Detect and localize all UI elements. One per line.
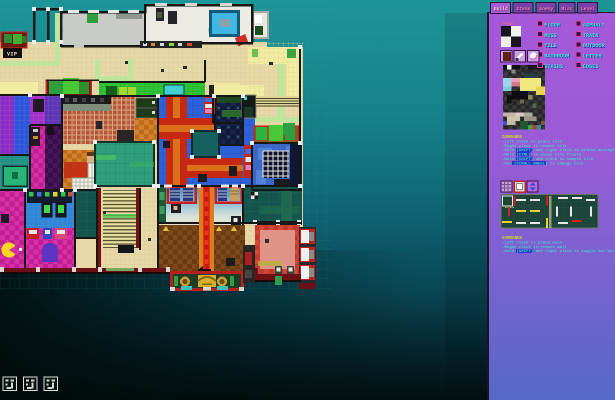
svg-text:-Left click to place tile: -Left click to place tile <box>502 139 563 144</box>
svg-text:COMMANDS: COMMANDS <box>502 136 523 140</box>
svg-text:-Left click to place wall: -Left click to place wall <box>502 240 563 245</box>
svg-text:ASPHALT: ASPHALT <box>583 22 605 28</box>
svg-text:TRAIN: TRAIN <box>583 33 599 39</box>
svg-text:-Use [SCROLL WHEEL] to change: -Use [SCROLL WHEEL] to change tile <box>502 161 584 166</box>
svg-text:Level: Level <box>581 6 595 12</box>
svg-text:-Hold [SHIFT] and right click: -Hold [SHIFT] and right click to toggle … <box>502 249 615 254</box>
svg-text:FLOOR: FLOOR <box>544 22 560 28</box>
svg-text:-Hold [CTRL] to place tile fre: -Hold [CTRL] to place tile freely <box>502 153 582 158</box>
svg-text:Misc: Misc <box>562 6 573 12</box>
svg-text:VIP: VIP <box>7 52 18 58</box>
svg-text:BATHROOM: BATHROOM <box>544 54 569 60</box>
svg-text:LETTER: LETTER <box>583 54 603 60</box>
svg-text:STAIRS: STAIRS <box>544 64 563 70</box>
svg-text:Items: Items <box>517 6 531 12</box>
svg-text:COMMANDS: COMMANDS <box>502 237 523 241</box>
svg-text:Build: Build <box>494 6 508 12</box>
svg-text:OUTDOOR: OUTDOOR <box>583 43 606 49</box>
svg-text:TILE: TILE <box>544 43 556 49</box>
svg-text:EDGES: EDGES <box>583 64 599 70</box>
svg-text:Enemy: Enemy <box>540 6 554 12</box>
svg-text:MOSS: MOSS <box>544 33 556 39</box>
svg-text:-Right click to remove wall: -Right click to remove wall <box>502 245 567 250</box>
svg-text:-Right click to remove tile: -Right click to remove tile <box>502 144 567 149</box>
